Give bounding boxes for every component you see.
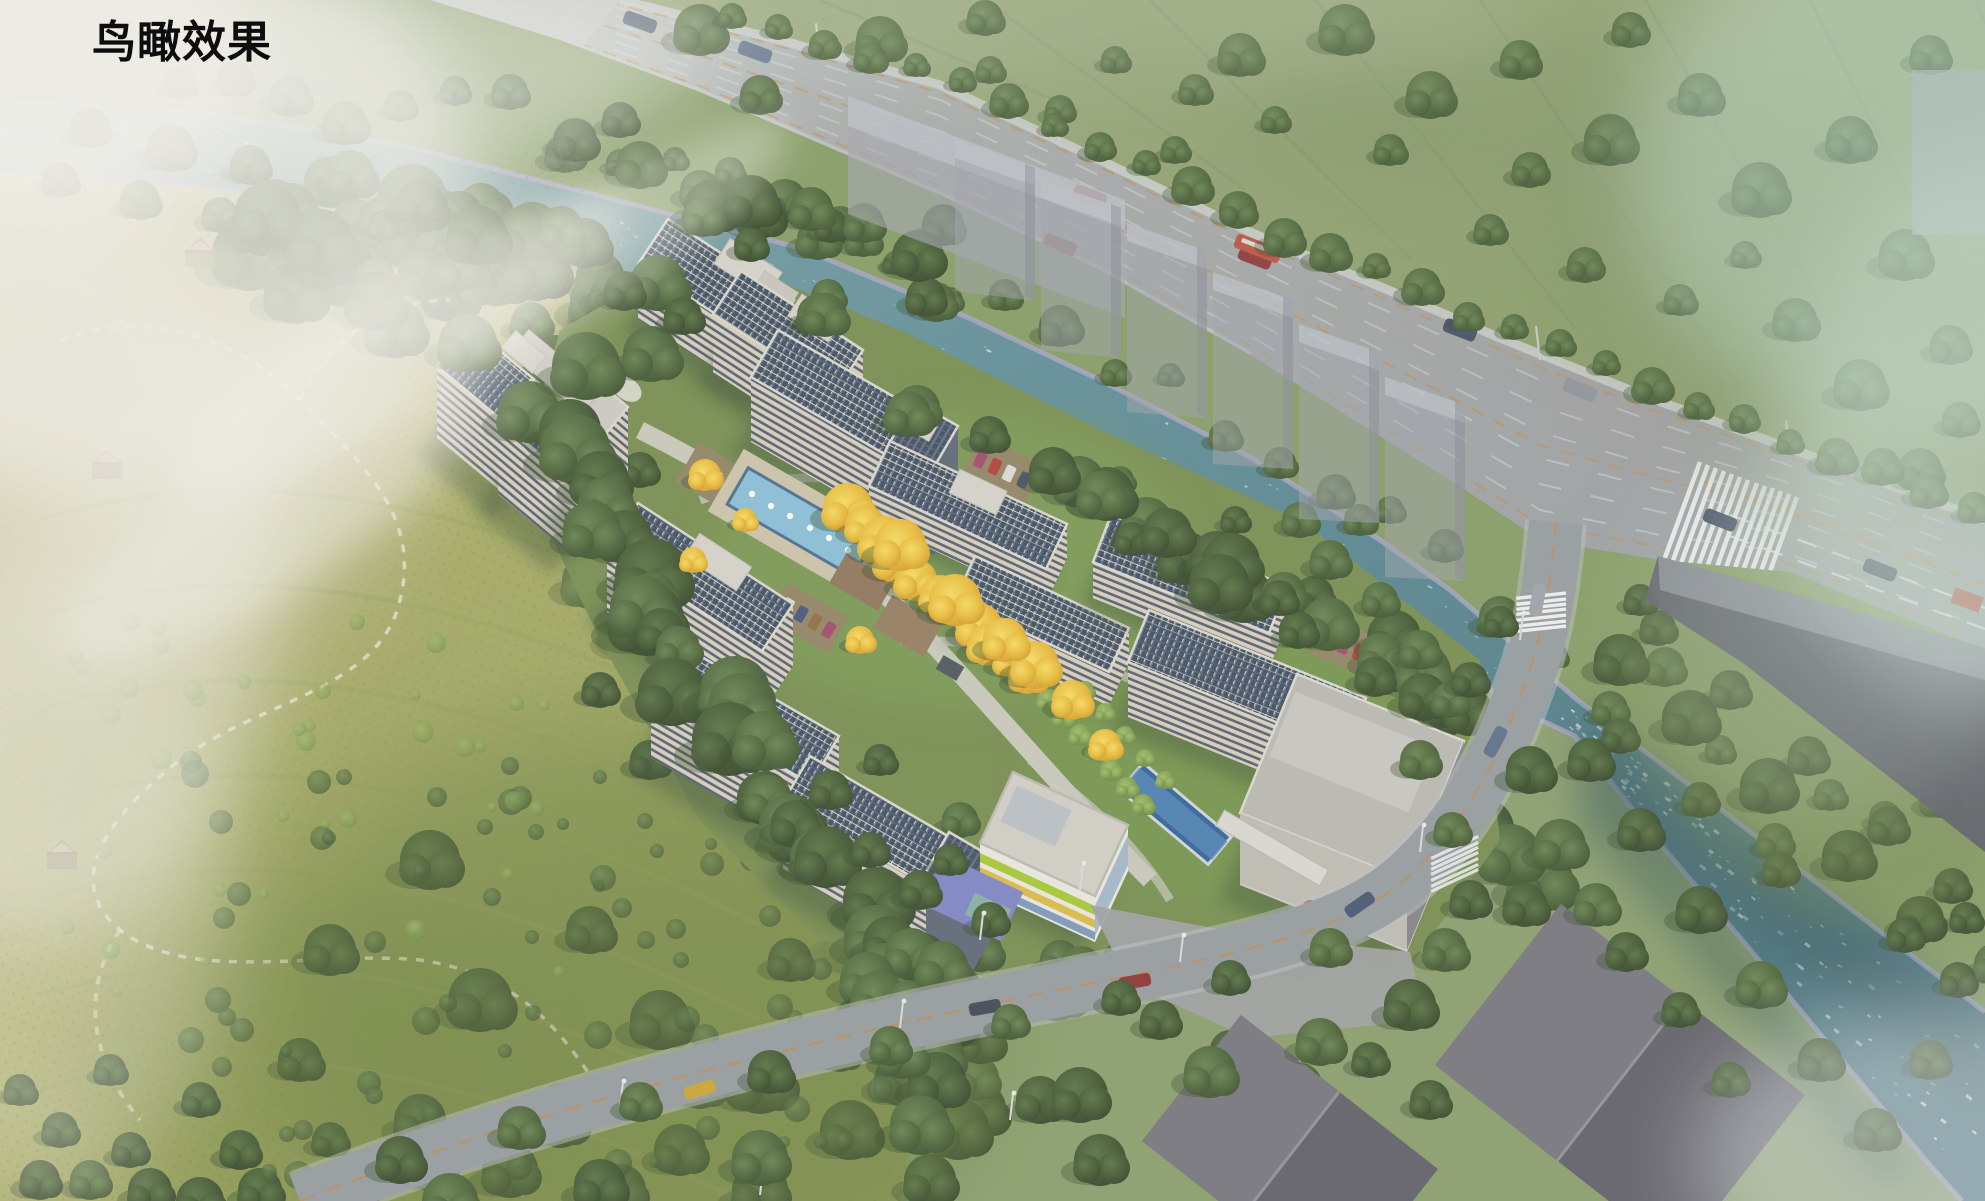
svg-text:鸟瞰效果: 鸟瞰效果 (92, 18, 272, 67)
